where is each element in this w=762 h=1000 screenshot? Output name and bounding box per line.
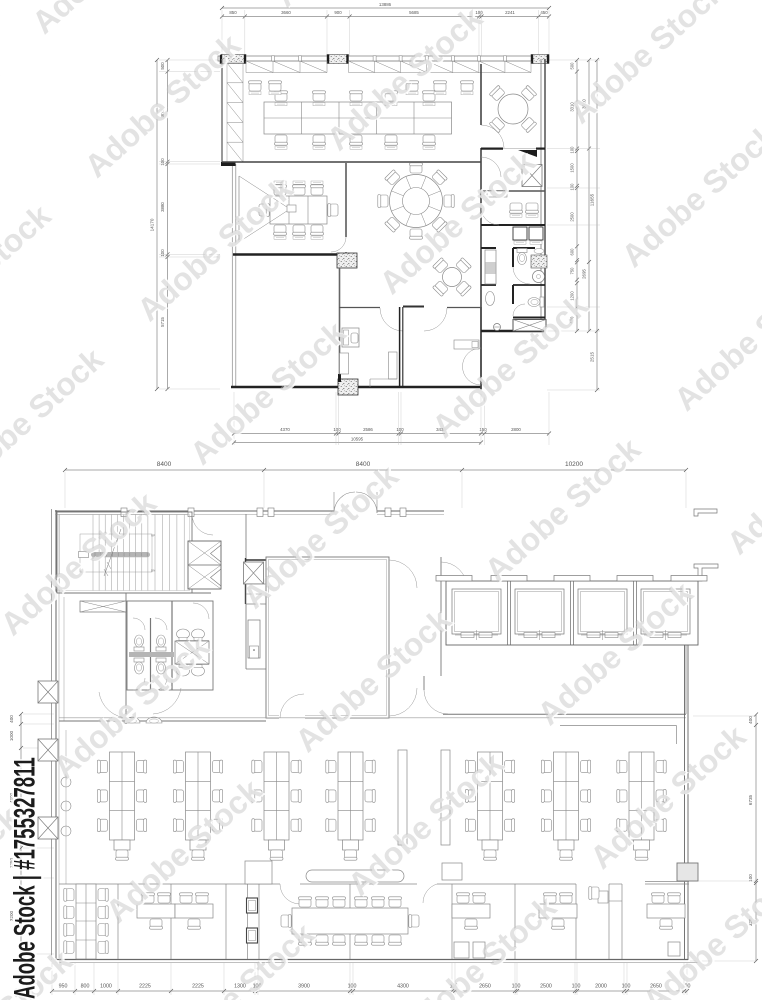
svg-text:2225: 2225 [192,984,204,990]
svg-text:100: 100 [570,183,575,191]
svg-text:13886: 13886 [379,2,392,7]
svg-text:10200: 10200 [565,461,583,468]
svg-text:150: 150 [479,427,487,432]
svg-text:100: 100 [572,984,581,990]
svg-text:4370: 4370 [280,427,290,432]
svg-text:750: 750 [570,267,575,275]
svg-text:450: 450 [540,10,548,15]
svg-text:8400: 8400 [356,461,371,468]
svg-text:2586: 2586 [363,427,373,432]
svg-text:1000: 1000 [100,984,112,990]
svg-text:11655: 11655 [590,193,595,206]
svg-text:4300: 4300 [397,984,409,990]
svg-text:3880: 3880 [160,202,165,212]
svg-text:2000: 2000 [595,984,607,990]
svg-text:100: 100 [748,874,753,882]
svg-text:10595: 10595 [351,437,364,442]
svg-text:1000: 1000 [9,730,14,741]
svg-text:100: 100 [160,249,165,257]
svg-text:2800: 2800 [511,427,521,432]
svg-text:500: 500 [570,62,575,70]
svg-text:100: 100 [396,427,404,432]
svg-text:DN: DN [151,569,155,573]
svg-text:100: 100 [622,984,631,990]
svg-text:900: 900 [334,10,342,15]
svg-text:850: 850 [229,10,237,15]
svg-text:400: 400 [9,715,14,723]
svg-text:Adobe Stock | #1755327811: Adobe Stock | #1755327811 [8,757,42,999]
svg-text:100: 100 [512,984,521,990]
svg-text:6735: 6735 [748,794,753,805]
svg-text:2695: 2695 [582,269,587,279]
svg-text:5685: 5685 [409,10,419,15]
svg-text:14170: 14170 [150,218,155,231]
svg-text:2225: 2225 [139,984,151,990]
svg-text:8400: 8400 [157,461,172,468]
svg-text:100: 100 [570,146,575,154]
svg-text:100: 100 [333,427,341,432]
svg-text:UP: UP [151,534,155,538]
svg-text:500: 500 [160,62,165,70]
svg-text:800: 800 [81,984,90,990]
svg-text:2500: 2500 [540,984,552,990]
svg-text:2515: 2515 [590,351,595,362]
svg-text:600: 600 [570,248,575,256]
svg-text:1500: 1500 [570,163,575,173]
svg-text:2500: 2500 [570,212,575,222]
svg-text:100: 100 [348,984,357,990]
svg-text:3900: 3900 [298,984,310,990]
svg-text:2241: 2241 [505,10,515,15]
svg-text:400: 400 [748,716,753,724]
